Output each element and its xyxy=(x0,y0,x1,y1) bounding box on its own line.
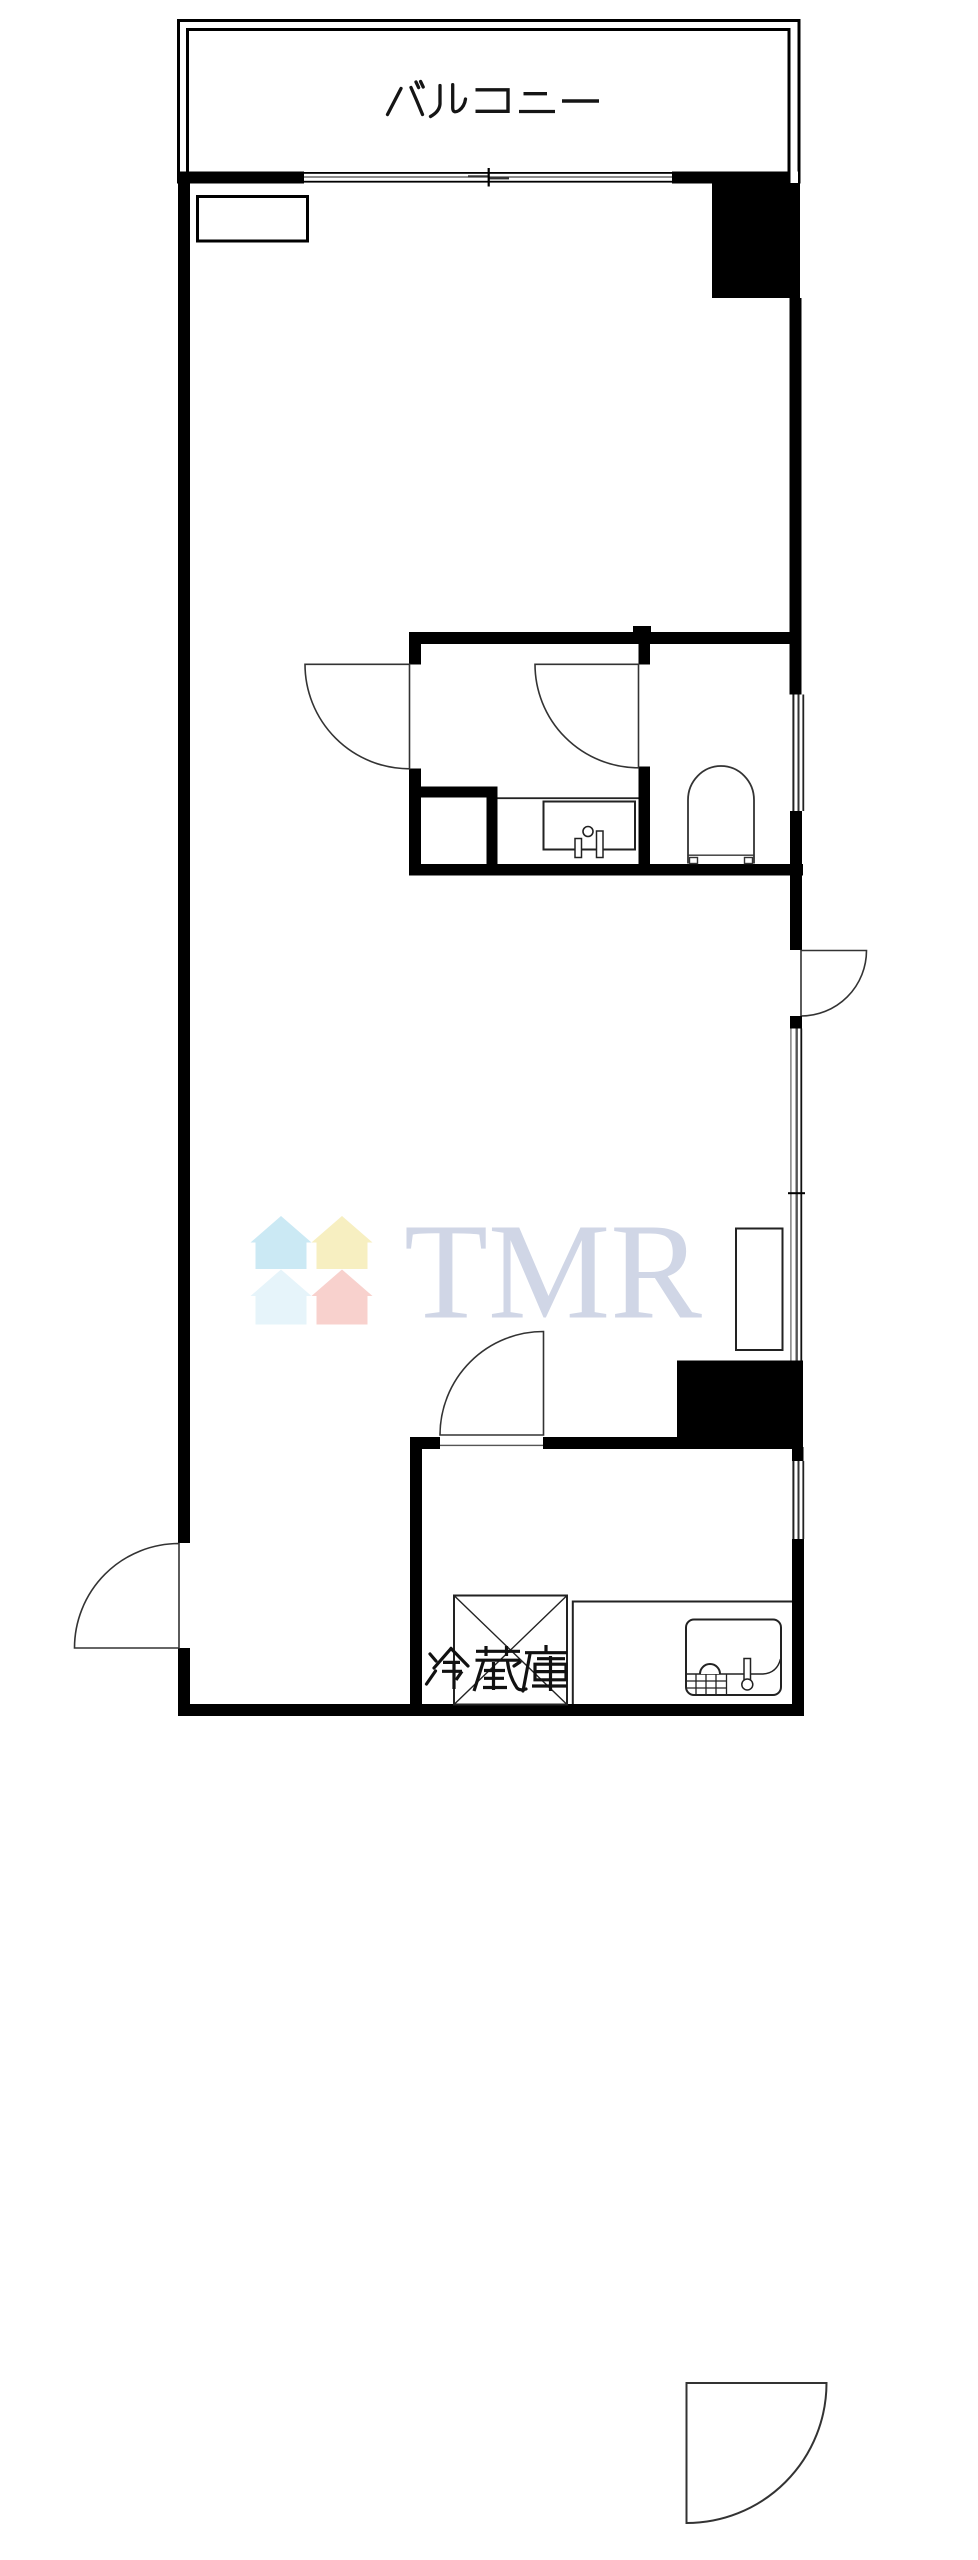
svg-text:TMR: TMR xyxy=(404,1195,702,1348)
